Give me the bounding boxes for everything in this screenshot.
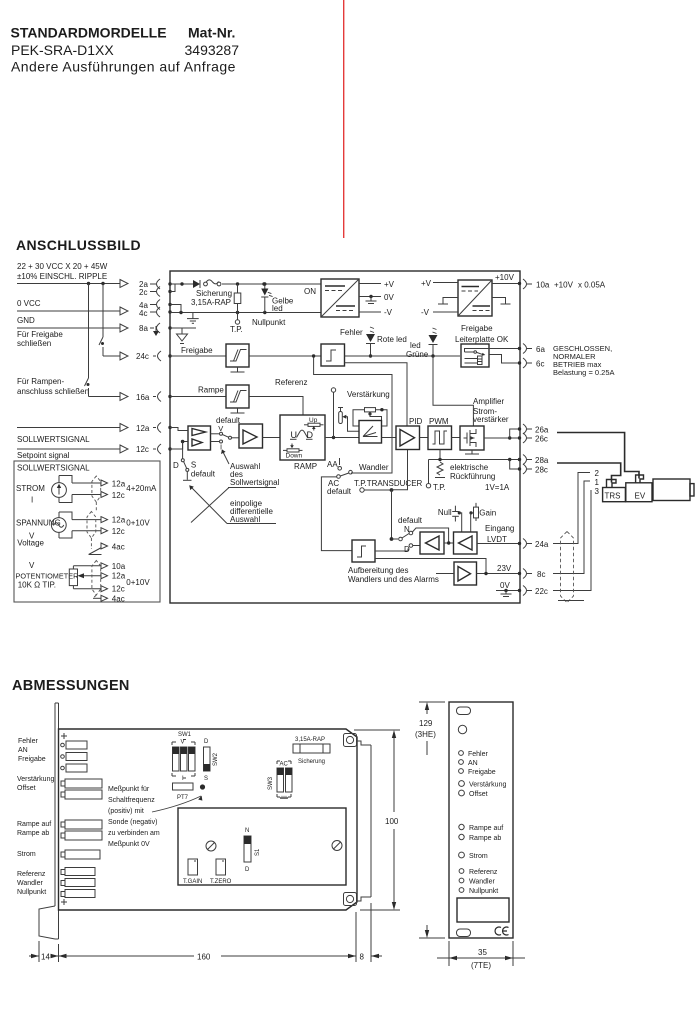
- svg-text:12c: 12c: [136, 445, 149, 454]
- svg-text:24a: 24a: [535, 540, 549, 549]
- svg-text:3,15A-RAP: 3,15A-RAP: [295, 737, 325, 743]
- svg-text:23V: 23V: [497, 564, 512, 573]
- svg-text:D: D: [204, 739, 209, 745]
- svg-text:(3HE): (3HE): [415, 730, 436, 739]
- svg-text:+10V: +10V: [554, 281, 574, 290]
- svg-text:D: D: [404, 545, 410, 554]
- svg-text:1V=1A: 1V=1A: [485, 483, 510, 492]
- svg-text:Rampe auf: Rampe auf: [469, 825, 503, 832]
- svg-text:SOLLWERTSIGNAL: SOLLWERTSIGNAL: [17, 464, 90, 473]
- svg-text:28c: 28c: [535, 466, 548, 475]
- svg-text:Leiterplatte OK: Leiterplatte OK: [455, 335, 509, 344]
- svg-text:2c: 2c: [139, 288, 147, 297]
- svg-text:12a: 12a: [112, 480, 126, 489]
- svg-text:Freigabe: Freigabe: [468, 769, 496, 776]
- svg-text:Setpoint signal: Setpoint signal: [17, 451, 70, 460]
- svg-text:S: S: [204, 776, 208, 782]
- svg-text:+V: +V: [384, 280, 395, 289]
- svg-text:Freigabe: Freigabe: [18, 756, 46, 763]
- svg-text:3: 3: [595, 487, 600, 496]
- svg-text:26a: 26a: [535, 426, 549, 435]
- svg-text:Rückführung: Rückführung: [450, 472, 495, 481]
- svg-text:12a: 12a: [112, 516, 126, 525]
- svg-text:Wandler: Wandler: [469, 879, 495, 886]
- svg-text:Sicherung: Sicherung: [298, 759, 325, 765]
- svg-text:4ac: 4ac: [112, 543, 125, 552]
- svg-text:Wandler: Wandler: [17, 880, 43, 887]
- svg-text:12a: 12a: [136, 424, 150, 433]
- svg-text:Offset: Offset: [17, 785, 36, 792]
- svg-text:6a: 6a: [536, 345, 545, 354]
- svg-text:100: 100: [385, 817, 399, 826]
- svg-text:AN: AN: [18, 747, 28, 754]
- svg-text:Meßpunkt für: Meßpunkt für: [108, 786, 150, 793]
- svg-text:V: V: [29, 561, 35, 570]
- svg-text:N: N: [245, 828, 249, 834]
- svg-text:129: 129: [419, 719, 433, 728]
- svg-text:Rote led: Rote led: [377, 335, 407, 344]
- svg-text:Für Freigabe: Für Freigabe: [17, 330, 63, 339]
- svg-text:Offset: Offset: [469, 791, 488, 798]
- svg-text:T.ZERO: T.ZERO: [210, 879, 232, 885]
- svg-text:default: default: [191, 470, 216, 479]
- svg-text:Referenz: Referenz: [275, 378, 307, 387]
- svg-text:Amplifier: Amplifier: [473, 397, 504, 406]
- svg-text:ON: ON: [304, 287, 316, 296]
- svg-text:U: U: [291, 430, 298, 440]
- svg-text:8a: 8a: [139, 324, 148, 333]
- svg-text:SW1: SW1: [178, 732, 192, 738]
- svg-text:Eingang: Eingang: [485, 524, 514, 533]
- svg-text:Meßpunkt 0V: Meßpunkt 0V: [108, 841, 150, 848]
- svg-text:I: I: [182, 776, 184, 782]
- svg-text:22c: 22c: [535, 587, 548, 596]
- svg-text:Auswahl: Auswahl: [230, 515, 260, 524]
- svg-text:Nullpunkt: Nullpunkt: [469, 888, 498, 895]
- svg-text:12c: 12c: [112, 585, 125, 594]
- svg-text:Für Rampen-: Für Rampen-: [17, 377, 64, 386]
- svg-text:D: D: [173, 461, 179, 470]
- svg-text:0 VCC: 0 VCC: [17, 299, 41, 308]
- svg-text:26c: 26c: [535, 435, 548, 444]
- svg-text:PID: PID: [409, 417, 423, 426]
- svg-text:verstärker: verstärker: [473, 415, 509, 424]
- svg-text:AA: AA: [327, 460, 338, 469]
- svg-text:Fehler: Fehler: [340, 328, 363, 337]
- svg-text:SW3: SW3: [268, 776, 274, 790]
- svg-text:6c: 6c: [536, 360, 544, 369]
- svg-text:-V: -V: [421, 308, 430, 317]
- svg-text:Referenz: Referenz: [469, 869, 498, 876]
- svg-text:I: I: [31, 496, 33, 505]
- svg-text:EV: EV: [635, 492, 646, 501]
- svg-text:+10V: +10V: [495, 273, 515, 282]
- svg-text:zu verbinden am: zu verbinden am: [108, 830, 160, 837]
- svg-text:Aufbereitung des: Aufbereitung des: [348, 566, 409, 575]
- svg-text:Rampe ab: Rampe ab: [469, 835, 501, 842]
- svg-text:Verstärkung: Verstärkung: [469, 782, 506, 789]
- svg-text:Null: Null: [438, 508, 452, 517]
- svg-text:4ac: 4ac: [112, 594, 125, 603]
- svg-text:Wandlers und des Alarms: Wandlers und des Alarms: [348, 575, 439, 584]
- svg-text:elektrische: elektrische: [450, 463, 489, 472]
- svg-text:2: 2: [595, 469, 600, 478]
- svg-text:Nullpunkt: Nullpunkt: [17, 889, 46, 896]
- svg-text:+V: +V: [421, 279, 432, 288]
- svg-text:AN: AN: [468, 760, 478, 767]
- svg-text:22 + 30 VCC X 20 + 45W: 22 + 30 VCC X 20 + 45W: [17, 262, 108, 271]
- svg-text:12c: 12c: [112, 491, 125, 500]
- svg-text:default: default: [398, 516, 423, 525]
- svg-text:T.P.TRANSDUCER: T.P.TRANSDUCER: [354, 479, 423, 488]
- svg-text:led: led: [410, 341, 421, 350]
- svg-text:D: D: [245, 867, 250, 873]
- svg-text:SOLLWERTSIGNAL: SOLLWERTSIGNAL: [17, 435, 90, 444]
- svg-text:PWM: PWM: [429, 417, 449, 426]
- svg-text:160: 160: [197, 953, 211, 962]
- svg-text:S: S: [191, 461, 196, 470]
- svg-text:12c: 12c: [112, 527, 125, 536]
- svg-text:PEK-SRA-D1XX: PEK-SRA-D1XX: [11, 42, 114, 58]
- svg-text:Verstärkung: Verstärkung: [17, 776, 54, 783]
- svg-text:T.P.: T.P.: [230, 325, 243, 334]
- svg-text:Sonde (negativ): Sonde (negativ): [108, 819, 157, 826]
- svg-text:35: 35: [478, 948, 487, 957]
- svg-text:Freigabe: Freigabe: [181, 346, 213, 355]
- svg-text:Schaltfrequenz: Schaltfrequenz: [108, 797, 155, 804]
- svg-text:Strom: Strom: [469, 853, 488, 860]
- svg-text:28a: 28a: [535, 456, 549, 465]
- svg-text:10K Ω TIP.: 10K Ω TIP.: [18, 581, 56, 590]
- svg-text:8: 8: [360, 953, 365, 962]
- svg-text:STANDARDMORDELLE: STANDARDMORDELLE: [11, 25, 167, 41]
- svg-text:SPANNUNG: SPANNUNG: [16, 519, 61, 528]
- svg-text:LVDT: LVDT: [487, 535, 507, 544]
- svg-text:16a: 16a: [136, 393, 150, 402]
- svg-text:0V: 0V: [384, 293, 394, 302]
- svg-text:ABMESSUNGEN: ABMESSUNGEN: [12, 678, 130, 694]
- svg-text:Referenz: Referenz: [17, 871, 46, 878]
- svg-text:Rampe ab: Rampe ab: [17, 830, 49, 837]
- svg-text:ANSCHLUSSBILD: ANSCHLUSSBILD: [16, 237, 141, 253]
- svg-text:Rampe auf: Rampe auf: [17, 821, 51, 828]
- svg-text:3,15A-RAP: 3,15A-RAP: [191, 298, 231, 307]
- svg-text:RAMP: RAMP: [294, 462, 317, 471]
- svg-text:Belastung = 0.25A: Belastung = 0.25A: [553, 368, 615, 377]
- svg-text:AC: AC: [280, 762, 289, 768]
- svg-text:x 0.05A: x 0.05A: [578, 281, 606, 290]
- svg-text:(positiv) mit: (positiv) mit: [108, 808, 144, 815]
- svg-text:Andere Ausführungen auf Anfrag: Andere Ausführungen auf Anfrage: [11, 59, 236, 75]
- svg-text:PT7: PT7: [177, 795, 189, 801]
- svg-text:4c: 4c: [139, 309, 147, 318]
- svg-text:12a: 12a: [112, 572, 126, 581]
- svg-text:Fehler: Fehler: [468, 751, 489, 758]
- svg-text:Freigabe: Freigabe: [461, 324, 493, 333]
- svg-text:V: V: [181, 740, 185, 746]
- svg-text:GND: GND: [17, 316, 35, 325]
- svg-text:Sollwertsignal: Sollwertsignal: [230, 478, 280, 487]
- svg-text:(7TE): (7TE): [471, 961, 491, 970]
- svg-text:0+10V: 0+10V: [126, 578, 150, 587]
- svg-text:anschluss schließen: anschluss schließen: [17, 387, 89, 396]
- svg-text:10a: 10a: [536, 281, 550, 290]
- svg-text:V: V: [218, 424, 223, 433]
- svg-text:Nullpunkt: Nullpunkt: [252, 318, 286, 327]
- svg-text:0+10V: 0+10V: [126, 519, 150, 528]
- svg-text:4+20mA: 4+20mA: [126, 484, 157, 493]
- svg-text:led: led: [272, 304, 283, 313]
- svg-text:14: 14: [41, 953, 50, 962]
- svg-text:8c: 8c: [537, 570, 545, 579]
- svg-text:10a: 10a: [112, 562, 126, 571]
- svg-text:24c: 24c: [136, 352, 149, 361]
- svg-text:3493287: 3493287: [185, 42, 240, 58]
- svg-text:SW2: SW2: [213, 752, 219, 766]
- svg-text:default: default: [327, 487, 352, 496]
- svg-text:Grüne: Grüne: [406, 350, 429, 359]
- svg-text:Verstärkung: Verstärkung: [347, 390, 390, 399]
- svg-text:schließen: schließen: [17, 339, 51, 348]
- svg-text:Strom: Strom: [17, 851, 36, 858]
- svg-text:Wandler: Wandler: [359, 463, 389, 472]
- svg-text:T.GAIN: T.GAIN: [183, 879, 202, 885]
- svg-text:1: 1: [595, 478, 600, 487]
- svg-text:T.P.: T.P.: [433, 483, 446, 492]
- svg-text:STROM: STROM: [16, 484, 45, 493]
- svg-text:±10% EINSCHL. RIPPLE: ±10% EINSCHL. RIPPLE: [17, 272, 107, 281]
- svg-text:Gain: Gain: [479, 509, 496, 518]
- svg-text:Rampe: Rampe: [198, 386, 224, 395]
- svg-text:-V: -V: [384, 308, 393, 317]
- svg-text:Sicherung: Sicherung: [196, 289, 232, 298]
- svg-text:Voltage: Voltage: [17, 539, 44, 548]
- svg-text:Fehler: Fehler: [18, 738, 39, 745]
- svg-text:S1: S1: [255, 848, 261, 856]
- svg-text:Mat-Nr.: Mat-Nr.: [188, 25, 235, 41]
- svg-text:D: D: [307, 430, 314, 440]
- svg-text:TRS: TRS: [605, 492, 621, 501]
- svg-text:0V: 0V: [500, 581, 510, 590]
- svg-text:Down: Down: [286, 453, 303, 460]
